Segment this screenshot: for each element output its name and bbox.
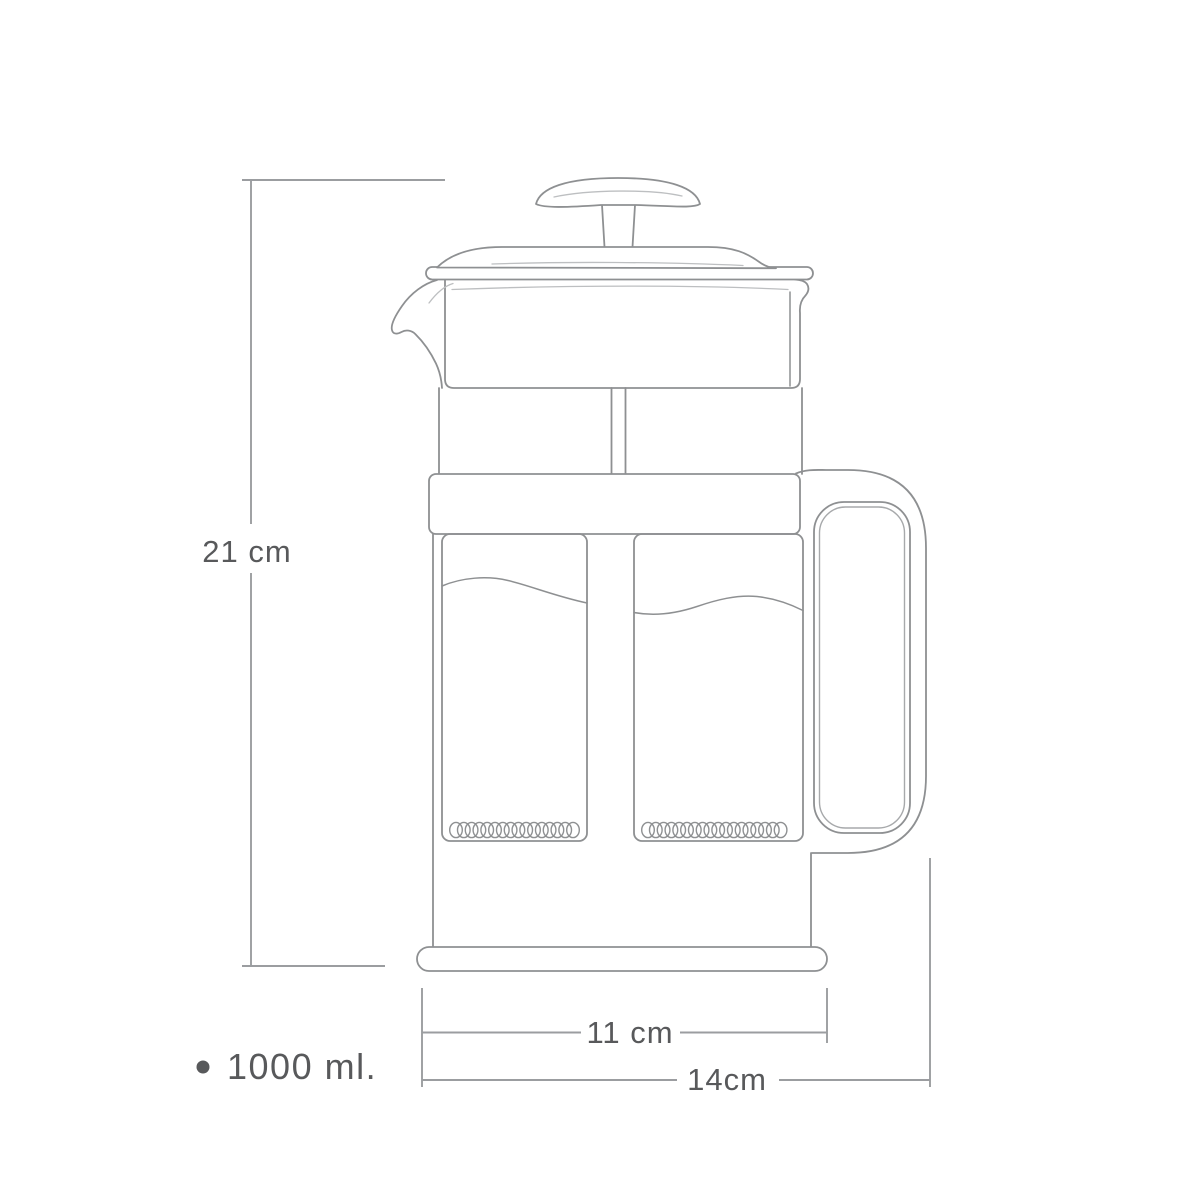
dimension-total-width: 14cm: [422, 858, 930, 1097]
spout-accent-line: [429, 284, 453, 304]
middle-band: [429, 474, 800, 534]
plunger-rod: [612, 388, 626, 474]
total-width-label: 14cm: [687, 1062, 767, 1097]
height-label: 21 cm: [202, 534, 291, 569]
upper-band: [445, 280, 808, 389]
bullet-icon: [197, 1061, 210, 1074]
water-line-right: [634, 596, 803, 614]
upper-band-outline: [445, 280, 808, 389]
handle: [796, 470, 926, 853]
filter-coil-left: [450, 822, 580, 837]
product-dimension-diagram: 21 cm 11 cm 14cm 1000 ml.: [0, 0, 1200, 1200]
base-width-label: 11 cm: [586, 1015, 673, 1050]
plunger-stem: [602, 205, 635, 247]
pour-spout: [392, 280, 453, 388]
french-press-diagram: 21 cm 11 cm 14cm 1000 ml.: [0, 0, 1200, 1200]
capacity-label: 1000 ml.: [227, 1046, 377, 1087]
handle-outer: [796, 470, 926, 853]
glass-window-right: [634, 534, 803, 841]
upper-band-accent-line: [452, 286, 788, 289]
french-press-drawing: [392, 178, 926, 971]
plunger-knob: [536, 178, 700, 207]
base: [417, 947, 827, 971]
capacity-note: 1000 ml.: [197, 1046, 378, 1087]
handle-hole-bevel: [820, 507, 905, 828]
filter-coil-right: [642, 822, 787, 837]
water-line-left: [442, 578, 587, 603]
handle-hole: [814, 502, 910, 833]
